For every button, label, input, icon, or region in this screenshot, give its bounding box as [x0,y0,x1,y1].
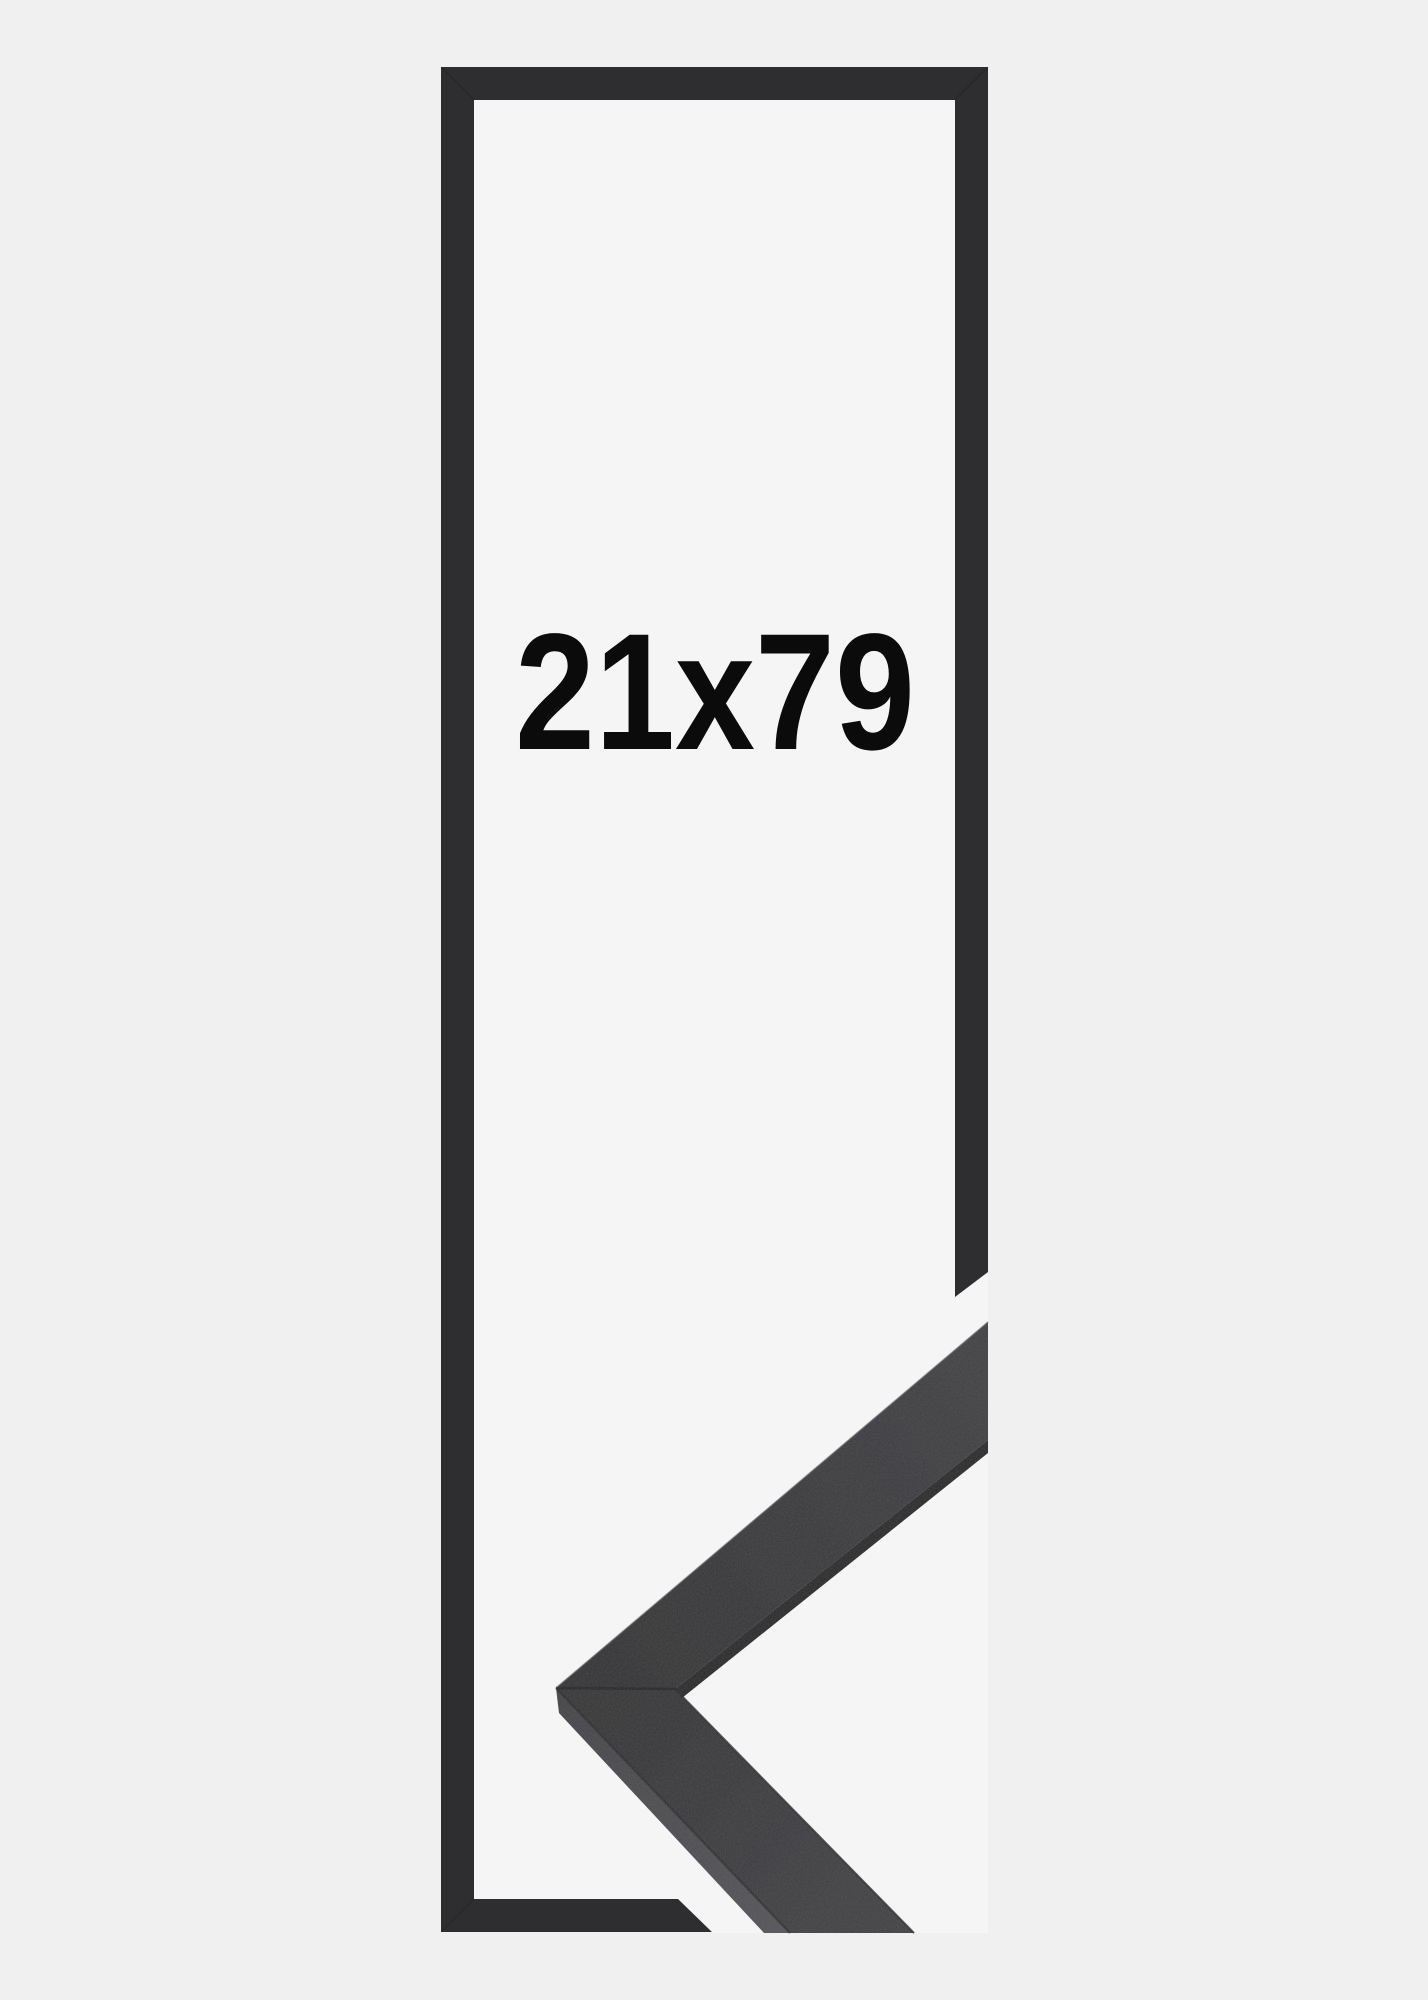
corner-miter-seam [556,1688,676,1689]
frame-size-label: 21x79 [515,600,915,785]
product-image: 21x79 [0,0,1428,2000]
frame-product-canvas: 21x79 [0,0,1428,2000]
